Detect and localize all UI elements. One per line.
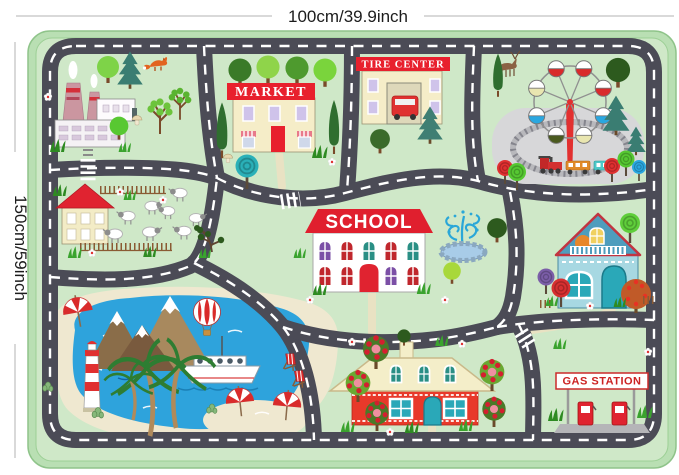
gondola-icon bbox=[529, 108, 545, 124]
station-pad bbox=[554, 424, 650, 433]
dimension-height: 150cm/59inch bbox=[11, 42, 30, 458]
gondola-icon bbox=[576, 127, 592, 143]
gondola-icon bbox=[548, 61, 564, 77]
market-door bbox=[271, 126, 285, 152]
gondola-icon bbox=[595, 80, 611, 96]
play-mat-scene: 100cm/39.9inch 150cm/59inch bbox=[0, 0, 679, 470]
height-label: 150cm/59inch bbox=[11, 195, 30, 301]
school-door bbox=[360, 264, 379, 292]
attic-window bbox=[590, 228, 604, 244]
mat: MARKET TIRE CENTER bbox=[28, 31, 676, 468]
gondola-icon bbox=[529, 80, 545, 96]
tire-center-sign-text: TIRE CENTER bbox=[361, 60, 444, 71]
house-door bbox=[424, 397, 441, 425]
school-sign-text: SCHOOL bbox=[325, 212, 412, 233]
market-windows bbox=[243, 106, 307, 121]
fuel-pump-icon bbox=[578, 402, 596, 425]
gondola-icon bbox=[576, 61, 592, 77]
fuel-pump-icon bbox=[612, 402, 630, 425]
width-label: 100cm/39.9inch bbox=[288, 7, 408, 26]
dimension-width: 100cm/39.9inch bbox=[16, 7, 674, 26]
gondola-icon bbox=[548, 127, 564, 143]
lighthouse bbox=[83, 341, 101, 412]
cottage-door bbox=[602, 266, 626, 308]
smoke bbox=[69, 61, 78, 79]
gas-station-sign-text: GAS STATION bbox=[562, 376, 641, 388]
product-image: 100cm/39.9inch 150cm/59inch bbox=[0, 0, 679, 470]
market-walkway bbox=[279, 152, 282, 187]
smoke bbox=[91, 74, 98, 88]
dormer-windows bbox=[390, 366, 455, 383]
market-sign-text: MARKET bbox=[235, 85, 307, 100]
